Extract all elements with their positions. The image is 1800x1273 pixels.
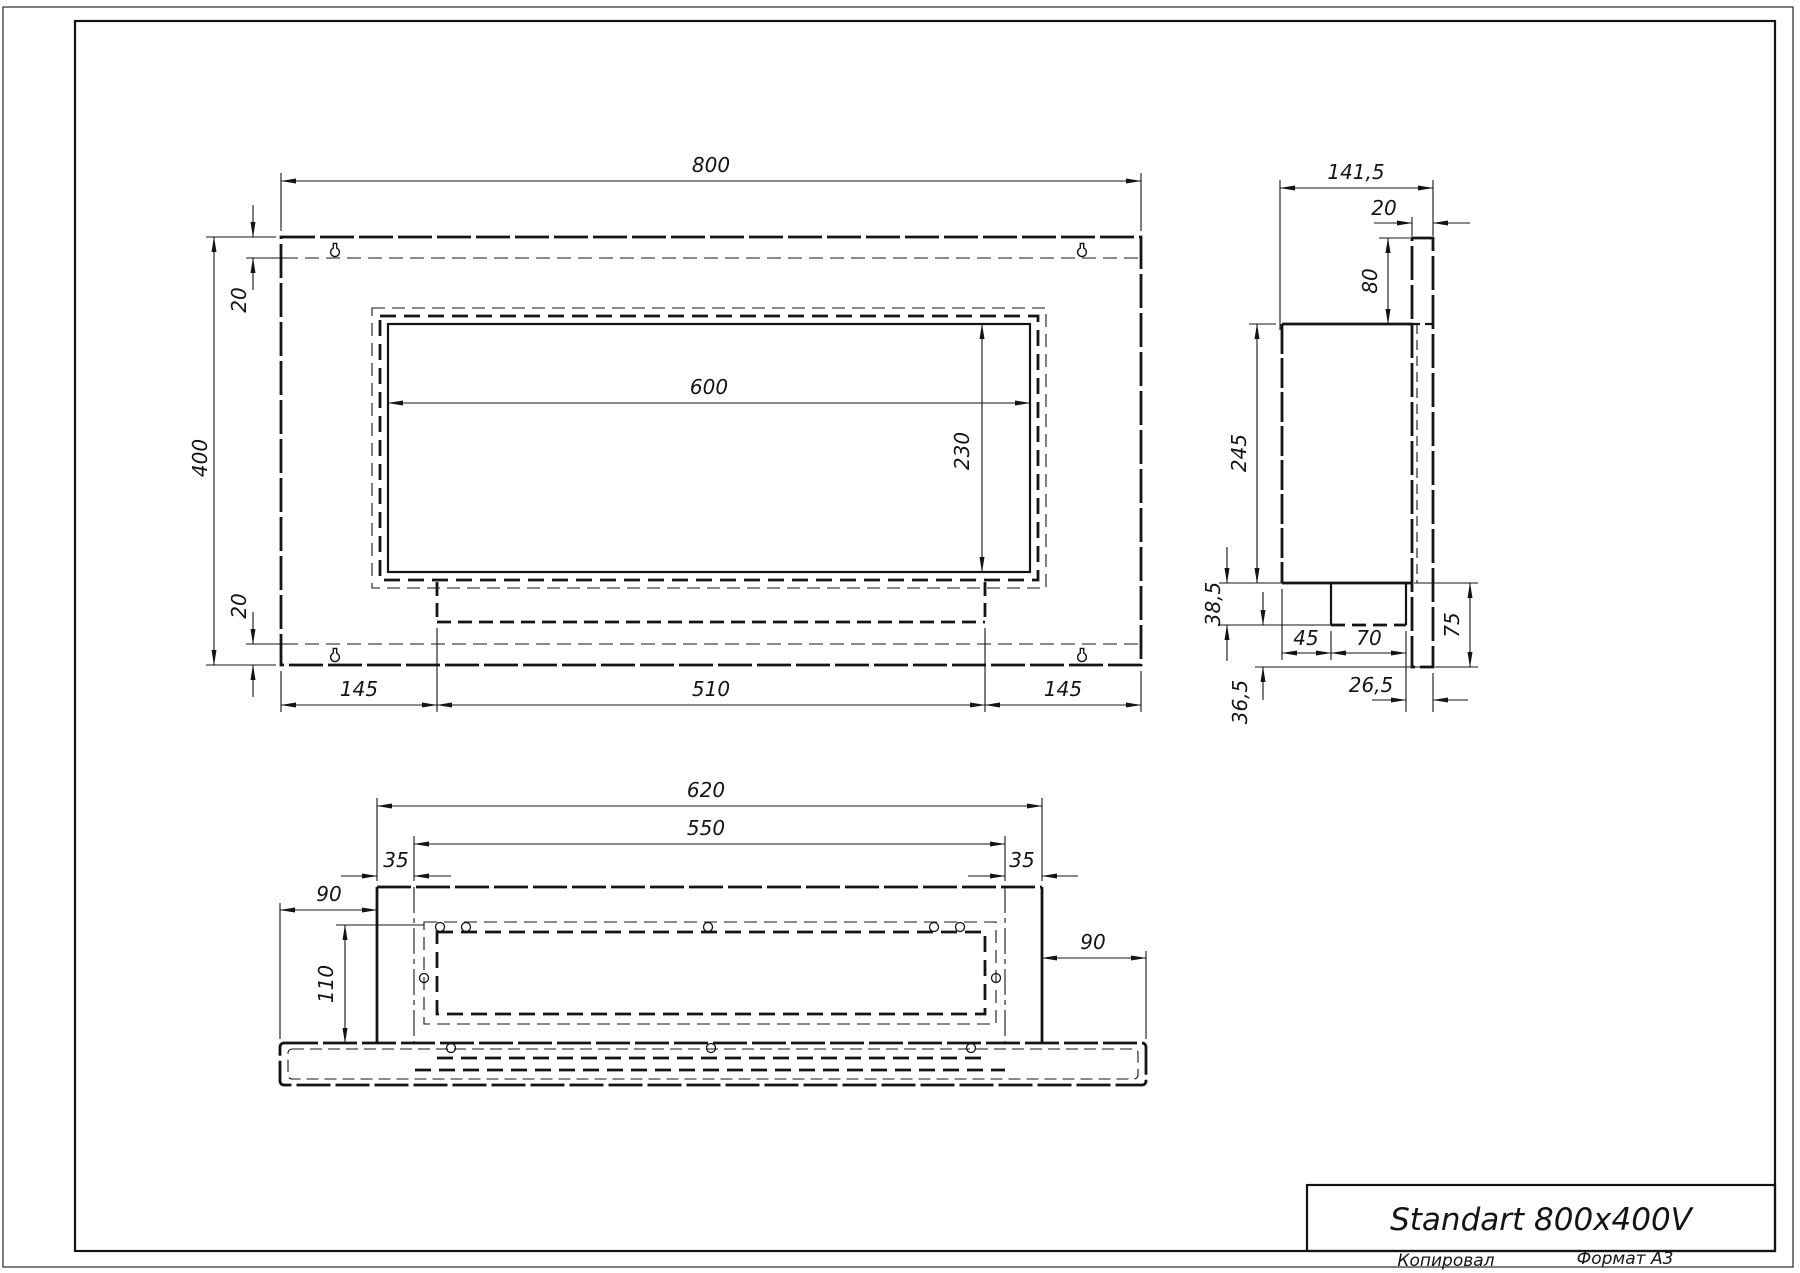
dim-front-wall-bottom: 20 — [227, 593, 251, 618]
dim-front-height: 400 — [188, 439, 212, 477]
keyhole-slot-icon — [1078, 244, 1087, 257]
dim-side-depth-group: 141,5 — [1280, 160, 1433, 330]
format-label: Формат А3 — [1577, 1249, 1674, 1269]
dim-front-width: 800 — [692, 153, 730, 177]
mounting-hole — [462, 923, 471, 932]
dim-front-opening-group: 600 230 — [388, 324, 1030, 572]
mounting-hole — [956, 923, 965, 932]
dim-side-depth: 141,5 — [1327, 160, 1384, 184]
dim-plate-top-offset: 80 — [1358, 268, 1382, 293]
dim-bottom-offset: 36,5 — [1228, 680, 1252, 725]
dim-box-height: 245 — [1227, 434, 1251, 472]
bottom-burner-outer-hidden — [424, 922, 996, 1024]
dim-bottom-depth: 110 — [314, 965, 338, 1003]
dim-flange-left-group: 90 — [280, 882, 377, 1039]
front-outer-contour — [281, 237, 1141, 665]
dim-inset-right: 35 — [1009, 848, 1034, 872]
dim-box-height-group: 245 — [1219, 324, 1282, 583]
dim-front-wall-top: 20 — [227, 287, 251, 312]
dim-plate-top-offset-group: 80 — [1358, 238, 1410, 324]
keyhole-slot-icon — [1078, 649, 1087, 662]
title-block: Standart 800x400V Копировал Формат А3 — [1307, 1185, 1775, 1271]
front-opening-edge — [388, 324, 1030, 572]
dim-front-width-group: 800 — [281, 153, 1141, 231]
dim-front-wall-top-group: 20 — [227, 205, 284, 313]
dim-tray-to-plate-group: 26,5 — [1349, 673, 1468, 712]
dim-front-wall-bottom-group: 20 — [227, 593, 284, 697]
dim-inset-right-group: 35 — [968, 848, 1078, 876]
side-back-plate — [1412, 238, 1433, 667]
dim-plate-thickness: 20 — [1371, 196, 1396, 220]
dim-left-margin: 145 — [340, 677, 378, 701]
bottom-flange-inner-hidden — [288, 1049, 1138, 1079]
copied-label: Копировал — [1397, 1251, 1494, 1271]
dim-inset-left-group: 35 — [341, 848, 451, 876]
dim-bottom-depth-group: 110 — [314, 925, 424, 1043]
dim-opening-width: 600 — [690, 375, 728, 399]
dim-opening-height: 230 — [950, 432, 974, 470]
dim-flange-left: 90 — [316, 882, 341, 906]
dim-inner-width: 550 — [687, 816, 725, 840]
dim-plate-bottom-offset: 75 — [1440, 612, 1464, 637]
drawing-frame — [75, 21, 1775, 1251]
mounting-hole — [704, 923, 713, 932]
mounting-hole — [436, 923, 445, 932]
front-opening-outer-hidden — [372, 308, 1046, 588]
keyhole-slot-icon — [331, 244, 340, 257]
mounting-hole — [967, 1044, 976, 1053]
dim-tray-depth: 70 — [1356, 626, 1381, 650]
dim-plate-bottom-offset-group: 75 — [1414, 583, 1478, 667]
dim-inner-width-group: 550 — [414, 816, 1005, 881]
dim-inset-left: 35 — [383, 848, 408, 872]
dim-right-margin: 145 — [1044, 677, 1082, 701]
technical-drawing: 800 400 20 20 600 230 — [0, 0, 1800, 1273]
dim-front-bottom-chain-group: 145 510 145 — [281, 628, 1141, 712]
dim-burner-width: 510 — [692, 677, 730, 701]
drawing-sheet: 800 400 20 20 600 230 — [0, 0, 1800, 1273]
dim-flange-right: 90 — [1080, 930, 1105, 954]
dim-tray-offset: 45 — [1293, 626, 1318, 650]
front-opening-mid-hidden — [380, 316, 1038, 580]
dim-tray-height: 38,5 — [1201, 582, 1225, 627]
front-view: 800 400 20 20 600 230 — [188, 153, 1141, 712]
dim-tray-to-plate: 26,5 — [1349, 673, 1394, 697]
bottom-burner-inner-hidden — [437, 932, 985, 1014]
dim-plate-thickness-group: 20 — [1371, 196, 1470, 236]
drawing-title: Standart 800x400V — [1390, 1202, 1695, 1238]
mounting-holes — [420, 923, 1001, 1053]
side-tray — [1331, 583, 1406, 625]
bottom-view: 620 550 35 35 90 110 — [280, 778, 1146, 1085]
keyhole-slot-icon — [331, 649, 340, 662]
mounting-hole — [930, 923, 939, 932]
dim-flange-right-group: 90 — [1042, 930, 1146, 1039]
page-outer-border — [3, 7, 1793, 1267]
dim-body-width: 620 — [687, 778, 725, 802]
side-view: 141,5 20 80 245 38,5 — [1201, 160, 1478, 724]
mounting-hole — [447, 1044, 456, 1053]
mounting-hole — [707, 1044, 716, 1053]
